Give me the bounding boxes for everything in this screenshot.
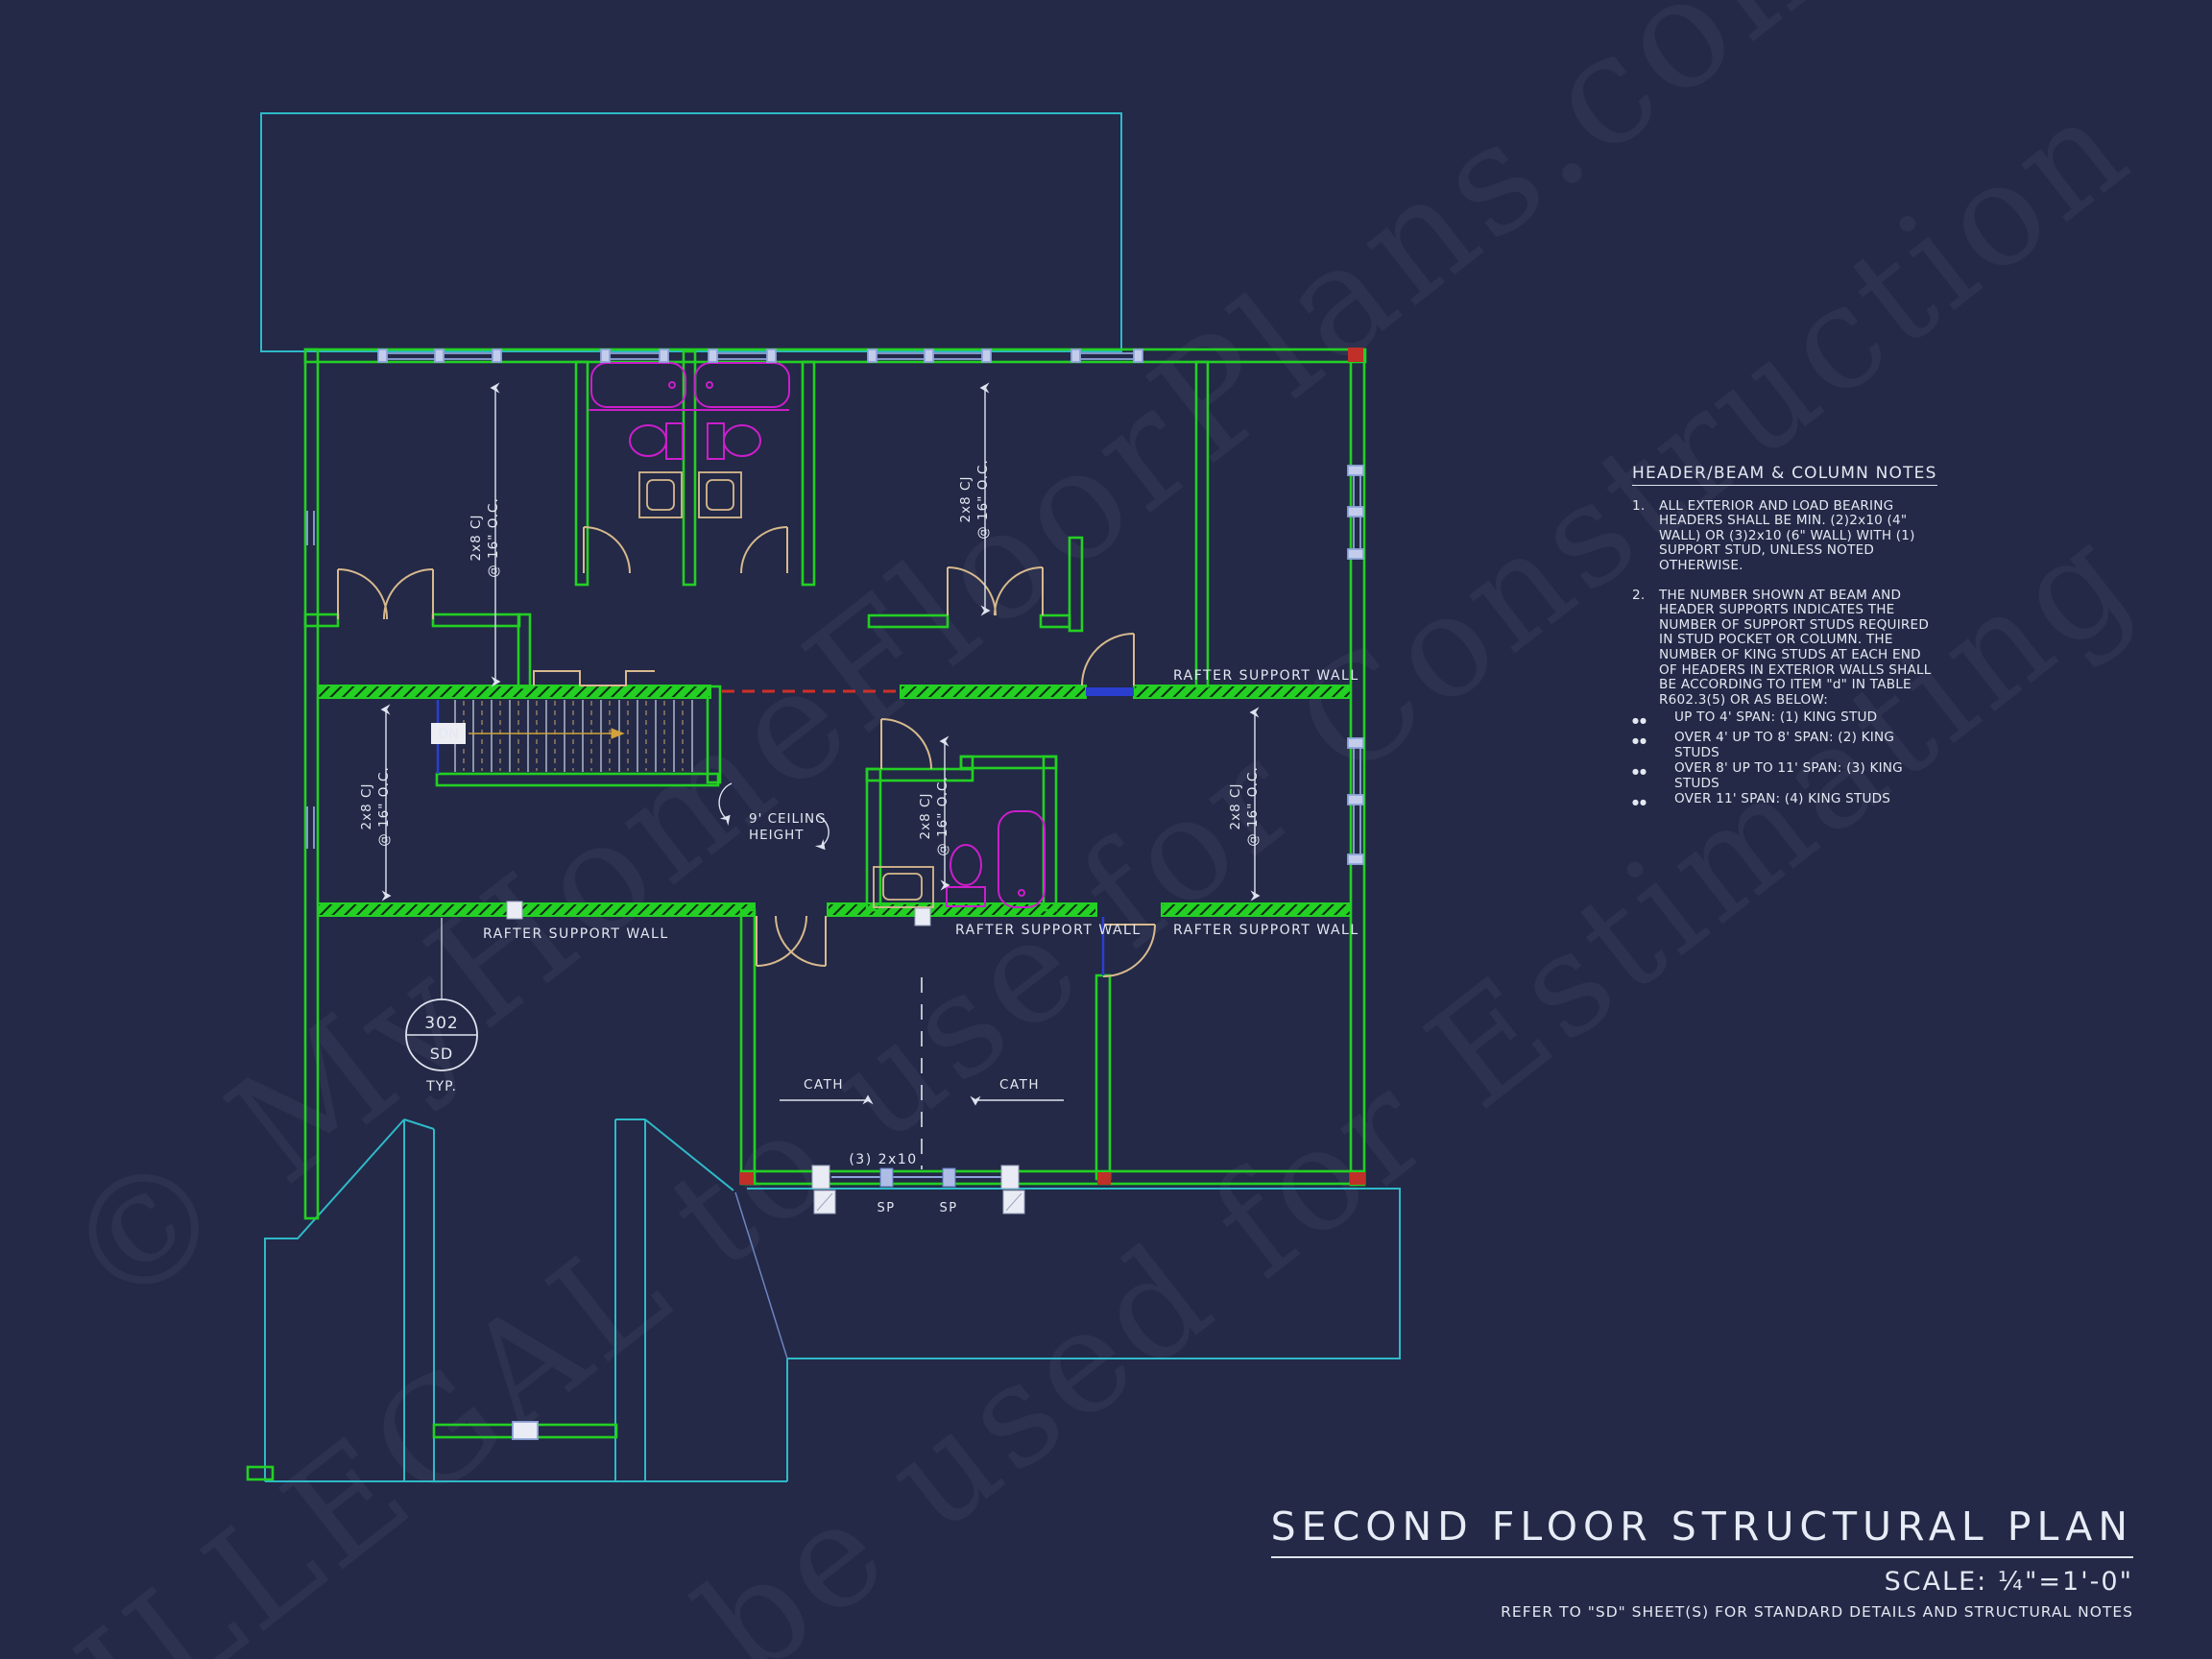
note-bullet-1: ●● UP TO 4' SPAN: (1) KING STUD xyxy=(1632,709,1941,729)
note-item-2: 2. THE NUMBER SHOWN AT BEAM AND HEADER S… xyxy=(1632,589,1941,709)
door-bath1-right xyxy=(741,527,787,573)
tub-3-drain xyxy=(1019,890,1024,896)
wall-closet1-a xyxy=(305,614,338,626)
bullet-text: OVER 11' SPAN: (4) KING STUDS xyxy=(1674,791,1890,810)
toilet-1-bowl xyxy=(630,425,666,456)
post-bath-wall xyxy=(915,908,930,926)
note-bullet-2: ●● OVER 4' UP TO 8' SPAN: (2) KING STUDS xyxy=(1632,730,1941,760)
vanity-1 xyxy=(639,472,682,517)
wall-stub-left xyxy=(248,1467,273,1479)
beam-label: (3) 2x10 xyxy=(849,1152,917,1167)
joist-spacing-label: @ 16" O.C. xyxy=(1245,766,1261,847)
callout-sheet-id: SD xyxy=(430,1045,453,1063)
joist-spacing-label: @ 16" O.C. xyxy=(935,776,950,856)
joist-spacing-label: @ 16" O.C. xyxy=(975,459,991,540)
note-number: 1. xyxy=(1632,499,1659,574)
bullet-text: OVER 4' UP TO 8' SPAN: (2) KING STUDS xyxy=(1674,730,1941,760)
red-markers xyxy=(739,348,1365,1185)
door-french-left-2 xyxy=(384,569,433,619)
ceiling-height-label-2: HEIGHT xyxy=(749,828,805,843)
bullet-icon: ●● xyxy=(1632,791,1674,810)
note-bullet-4: ●● OVER 11' SPAN: (4) KING STUDS xyxy=(1632,791,1941,810)
joist-spacing-label: @ 16" O.C. xyxy=(376,766,392,847)
joist-label: 2x8 CJ xyxy=(958,476,974,523)
ceiling-curve-arrow-1 xyxy=(719,783,732,819)
tub-2 xyxy=(695,363,789,407)
roof-valley-line xyxy=(735,1192,787,1358)
wall-stair-bottom xyxy=(437,774,718,785)
post-mid-wall xyxy=(507,902,522,919)
sheet-title: SECOND FLOOR STRUCTURAL PLAN xyxy=(1271,1503,2133,1558)
bullet-icon: ●● xyxy=(1632,760,1674,791)
note-text: THE NUMBER SHOWN AT BEAM AND HEADER SUPP… xyxy=(1659,589,1941,709)
toilet-3-bowl xyxy=(950,845,981,885)
joist-labels: 2x8 CJ @ 16" O.C. 2x8 CJ @ 16" O.C. 2x8 … xyxy=(359,459,1261,856)
door-closet2-1 xyxy=(948,567,996,615)
wall-closet2-b xyxy=(1041,615,1070,627)
rafter-wall-label-2: RAFTER SUPPORT WALL xyxy=(483,926,669,942)
door-bath2 xyxy=(881,719,931,769)
wall-bath2-top-a xyxy=(867,769,973,781)
sp-label-1: SP xyxy=(877,1201,895,1215)
wall-bath-left xyxy=(576,362,588,585)
post-right xyxy=(1001,1166,1019,1189)
vanity-2 xyxy=(699,472,741,517)
vanity-1-sink xyxy=(647,480,674,510)
detail-callout: 302 SD TYP. xyxy=(406,999,477,1094)
joist-spacing-label: @ 16" O.C. xyxy=(486,497,501,578)
toilet-2-tank xyxy=(708,423,724,459)
note-bullet-3: ●● OVER 8' UP TO 11' SPAN: (3) KING STUD… xyxy=(1632,760,1941,791)
wall-exterior-left xyxy=(305,349,318,1218)
rafter-wall-label-1: RAFTER SUPPORT WALL xyxy=(1173,668,1359,684)
rafter-wall-label-3: RAFTER SUPPORT WALL xyxy=(955,923,1142,938)
stud-pocket-left xyxy=(880,1168,893,1187)
bullet-text: OVER 8' UP TO 11' SPAN: (3) KING STUDS xyxy=(1674,760,1941,791)
plan-labels: RAFTER SUPPORT WALL RAFTER SUPPORT WALL … xyxy=(483,668,1359,1215)
dormer-right xyxy=(615,1119,733,1481)
roof-outline-top xyxy=(261,113,1121,351)
post-left xyxy=(812,1166,829,1189)
sp-label-2: SP xyxy=(939,1201,957,1215)
corner-marker-bottom-right xyxy=(1350,1172,1365,1185)
sheet-refer-note: REFER TO "SD" SHEET(S) FOR STANDARD DETA… xyxy=(1271,1603,2133,1621)
note-number: 2. xyxy=(1632,589,1659,709)
note-item-1: 1. ALL EXTERIOR AND LOAD BEARING HEADERS… xyxy=(1632,499,1941,574)
vanity-2-sink xyxy=(707,480,733,510)
cad-sheet: © MyHomeFloorPlans.com ILLEGAL to use fo… xyxy=(0,0,2212,1659)
joist-label: 2x8 CJ xyxy=(1228,783,1243,830)
dimension-arrows xyxy=(386,388,1255,1100)
stair-treads-dashed xyxy=(464,701,683,771)
wall-hall-right xyxy=(1070,538,1082,631)
bullet-icon: ●● xyxy=(1632,709,1674,729)
note-text: ALL EXTERIOR AND LOAD BEARING HEADERS SH… xyxy=(1659,499,1941,574)
joist-label: 2x8 CJ xyxy=(469,515,484,562)
cath-label-left: CATH xyxy=(804,1077,844,1093)
tub-3 xyxy=(998,811,1045,907)
door-header-blue xyxy=(1086,687,1134,696)
wall-stair-right xyxy=(708,686,720,782)
door-closet2-2 xyxy=(995,567,1043,615)
roof-outline-bottom-right xyxy=(747,1189,1400,1358)
corner-marker-top-right xyxy=(1348,348,1363,362)
header-beam-column-notes: HEADER/BEAM & COLUMN NOTES 1. ALL EXTERI… xyxy=(1632,467,1941,811)
door-french-left-1 xyxy=(338,569,387,619)
bullet-text: UP TO 4' SPAN: (1) KING STUD xyxy=(1674,709,1877,729)
rafter-wall-label-4: RAFTER SUPPORT WALL xyxy=(1173,923,1359,938)
cath-label-right: CATH xyxy=(999,1077,1040,1093)
windows xyxy=(307,349,1363,1439)
toilet-1-tank xyxy=(666,423,683,459)
wall-closet1-b xyxy=(433,614,519,626)
callout-typ-label: TYP. xyxy=(425,1079,457,1094)
toilet-2-bowl xyxy=(724,425,760,456)
corner-marker-bottom-left xyxy=(739,1172,754,1185)
tub-1-drain xyxy=(669,382,675,388)
floor-plan-drawing: DN xyxy=(0,0,2212,1659)
title-block: SECOND FLOOR STRUCTURAL PLAN SCALE: ¼"=1… xyxy=(1271,1503,2133,1621)
tub-1 xyxy=(591,363,685,407)
callout-detail-number: 302 xyxy=(424,1014,458,1033)
dormer-left xyxy=(265,1119,434,1481)
wall-bath2-top-b xyxy=(961,757,1056,768)
ceiling-height-label-1: 9' CEILING xyxy=(749,811,827,827)
wall-cath-right xyxy=(1096,975,1110,1179)
corner-marker-bottom-mid xyxy=(1097,1172,1111,1185)
vanity-3-sink xyxy=(883,874,922,900)
sheet-scale: SCALE: ¼"=1'-0" xyxy=(1271,1567,2133,1597)
wall-cath-left xyxy=(741,910,755,1183)
stairs: DN xyxy=(431,700,692,774)
notes-heading: HEADER/BEAM & COLUMN NOTES xyxy=(1632,467,1937,486)
door-bath1-left xyxy=(584,527,630,573)
linen-closet-step xyxy=(534,671,655,685)
joist-label: 2x8 CJ xyxy=(359,783,374,830)
dn-label: DN xyxy=(438,727,458,742)
wall-bath-right xyxy=(803,362,814,585)
bullet-icon: ●● xyxy=(1632,730,1674,760)
stud-pocket-right xyxy=(943,1168,955,1187)
joist-label: 2x8 CJ xyxy=(918,793,933,840)
wall-closet2-a xyxy=(869,615,948,627)
wall-bedroom2-right xyxy=(1196,362,1208,686)
tub-2-drain xyxy=(707,382,712,388)
door-right-room-upper xyxy=(1082,634,1134,685)
